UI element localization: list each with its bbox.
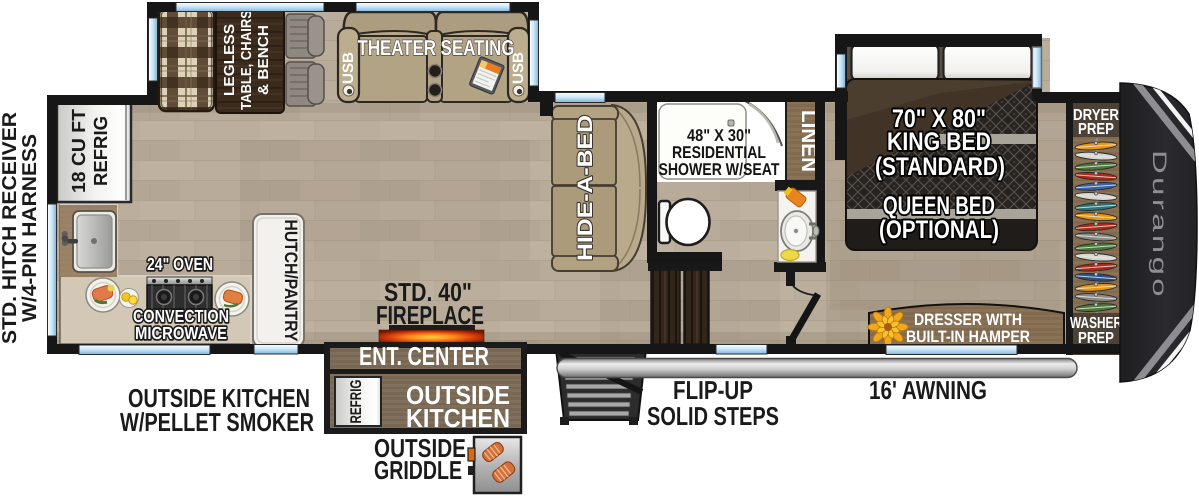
svg-text:16' AWNING: 16' AWNING	[869, 375, 987, 405]
svg-text:THEATER SEATING: THEATER SEATING	[358, 36, 515, 60]
svg-text:(STANDARD): (STANDARD)	[875, 153, 1005, 181]
svg-text:MICROWAVE: MICROWAVE	[135, 323, 227, 343]
svg-text:W/4-PIN HARNESS: W/4-PIN HARNESS	[19, 134, 41, 322]
svg-text:(OPTIONAL): (OPTIONAL)	[879, 216, 999, 244]
svg-text:BUILT-IN HAMPER: BUILT-IN HAMPER	[906, 328, 1030, 346]
svg-text:Durango: Durango	[1148, 150, 1170, 300]
svg-text:LEGLESS: LEGLESS	[222, 24, 238, 96]
svg-text:TABLE, CHAIRS: TABLE, CHAIRS	[239, 10, 255, 110]
svg-text:18 CU FT: 18 CU FT	[69, 109, 90, 193]
svg-text:STD. HITCH RECEIVER: STD. HITCH RECEIVER	[0, 111, 21, 344]
svg-text:HIDE-A-BED: HIDE-A-BED	[574, 115, 597, 261]
svg-text:KITCHEN: KITCHEN	[406, 403, 510, 433]
svg-text:USB: USB	[340, 52, 357, 84]
svg-text:DRESSER WITH: DRESSER WITH	[914, 311, 1022, 329]
svg-text:SOLID STEPS: SOLID STEPS	[647, 401, 779, 431]
svg-text:REFRIG: REFRIG	[91, 116, 112, 186]
svg-text:GRIDDLE: GRIDDLE	[374, 455, 462, 485]
svg-text:REFRIG: REFRIG	[348, 380, 365, 424]
svg-text:W/PELLET SMOKER: W/PELLET SMOKER	[120, 407, 314, 437]
svg-text:KING BED: KING BED	[887, 128, 991, 156]
svg-text:PREP: PREP	[1078, 121, 1114, 138]
svg-text:24" OVEN: 24" OVEN	[147, 254, 213, 274]
svg-text:SHOWER W/SEAT: SHOWER W/SEAT	[659, 160, 781, 179]
svg-text:& BENCH: & BENCH	[256, 25, 272, 95]
svg-text:HUTCH/PANTRY: HUTCH/PANTRY	[281, 220, 301, 342]
svg-text:FIREPLACE: FIREPLACE	[376, 300, 484, 330]
svg-text:ENT. CENTER: ENT. CENTER	[359, 341, 489, 371]
